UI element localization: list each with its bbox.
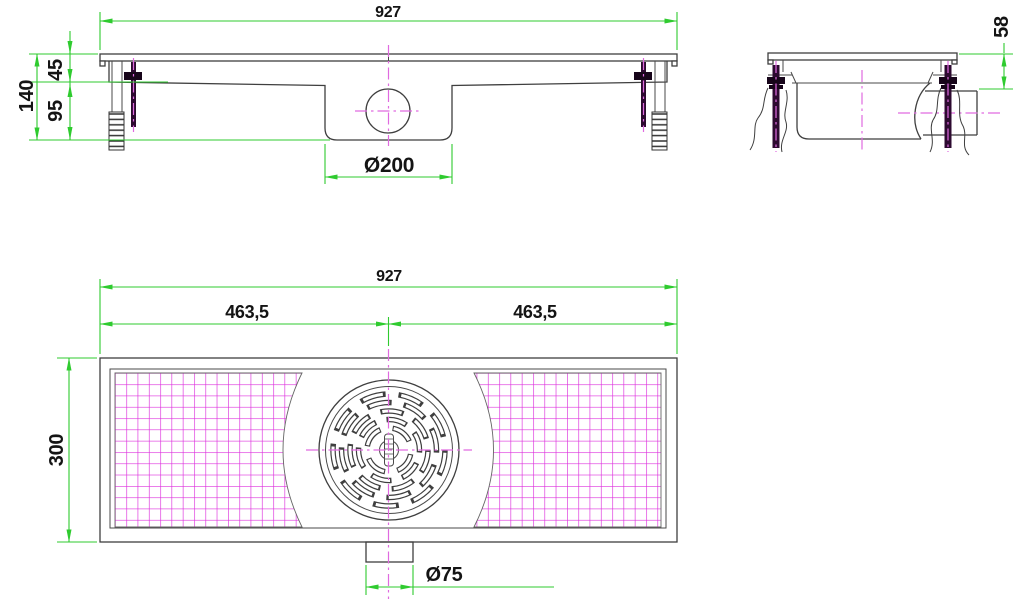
end-plate-lip-right xyxy=(952,60,957,64)
end-sump-body xyxy=(797,83,921,139)
front-view: 927 140 45 95 Ø200 xyxy=(16,4,677,184)
end-top-plate xyxy=(768,53,957,60)
dim-text-end-height: 58 xyxy=(991,16,1013,38)
front-foot-left xyxy=(109,112,124,150)
dim-text-top-height: 45 xyxy=(45,59,67,81)
dim-text-depth: 300 xyxy=(46,434,68,467)
front-plate-lip-left xyxy=(100,61,105,66)
end-view: 58 xyxy=(750,16,1013,155)
dim-text-front-width: 927 xyxy=(375,4,401,21)
dim-text-sump-diameter: Ø200 xyxy=(364,154,414,177)
floor-grating-left xyxy=(115,373,302,527)
end-dimensions: 58 xyxy=(959,16,1013,89)
break-line xyxy=(930,88,941,152)
dim-text-total-height: 140 xyxy=(16,80,38,113)
break-line xyxy=(957,90,969,155)
technical-drawing: 927 140 45 95 Ø200 xyxy=(0,0,1024,606)
plan-outlet-stub xyxy=(366,542,413,562)
break-line xyxy=(781,90,787,152)
front-plate-lip-right xyxy=(672,61,677,66)
front-dimensions: 927 140 45 95 Ø200 xyxy=(16,4,677,184)
dim-text-half-left: 463,5 xyxy=(225,302,269,322)
dim-text-outlet-diameter: Ø75 xyxy=(426,564,463,586)
end-plate-lip-left xyxy=(768,60,773,64)
dim-text-plan-width: 927 xyxy=(376,268,402,285)
plan-view: 927 463,5 463,5 300 Ø75 xyxy=(46,268,677,599)
front-anchor-bolt-left xyxy=(124,58,142,132)
front-leg-right xyxy=(652,61,667,150)
dim-text-half-right: 463,5 xyxy=(513,302,557,322)
floor-grating-right xyxy=(474,373,661,527)
front-leg-left xyxy=(109,61,124,150)
front-foot-right xyxy=(652,112,667,150)
break-line xyxy=(750,88,768,150)
drawing-svg: 927 140 45 95 Ø200 xyxy=(0,0,1024,606)
dim-text-body-height: 95 xyxy=(45,100,67,122)
front-anchor-bolt-right xyxy=(634,58,652,132)
